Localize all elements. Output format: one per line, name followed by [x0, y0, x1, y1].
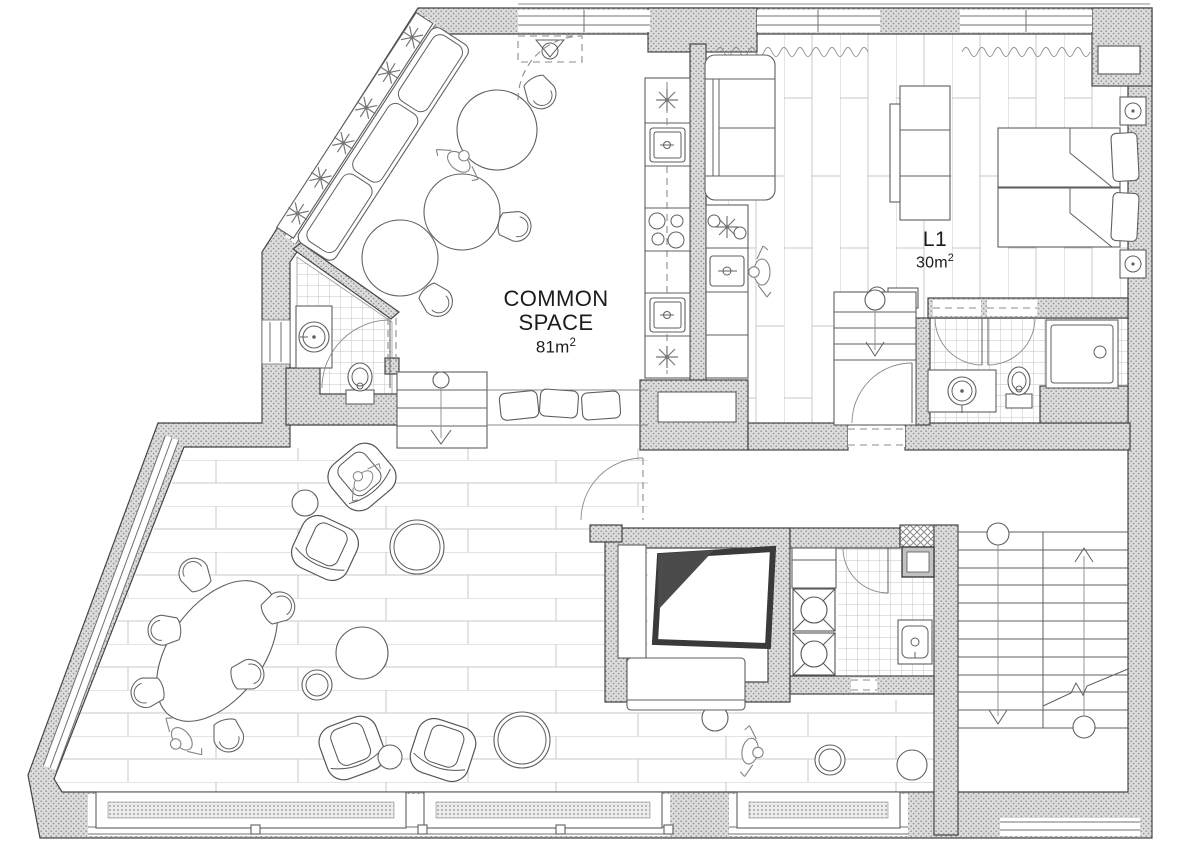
wall-shower [1040, 386, 1128, 423]
entry-stair-l1 [834, 290, 916, 447]
toilet-icon [1006, 367, 1032, 408]
sofa-l1 [705, 55, 775, 200]
window-bench [96, 792, 900, 834]
round-table [362, 220, 438, 296]
washing-machine-icon [793, 589, 835, 631]
floor-cushion [539, 389, 579, 419]
label-common-space: COMMON SPACE 81m2 [491, 287, 621, 358]
pouf [292, 490, 318, 516]
window-wc [262, 320, 290, 364]
wardrobe [890, 86, 950, 220]
wall-laundry-top [790, 528, 900, 548]
pouf [336, 627, 388, 679]
shaft-crosshatch [900, 525, 934, 547]
floor-cushion [499, 390, 540, 421]
twin-bed [998, 128, 1139, 187]
twin-bed [998, 188, 1139, 247]
shower-tray-icon [1046, 320, 1118, 388]
steps-common [397, 372, 487, 448]
coffee-table [494, 712, 550, 768]
room-area-common-space: 81m2 [491, 337, 621, 357]
tub-chair [496, 209, 533, 244]
coffee-table [390, 520, 444, 574]
room-area-unit-l1: 30m2 [899, 252, 971, 272]
pouf [378, 745, 402, 769]
laundry-counter [792, 548, 836, 588]
floor-cushion [581, 391, 621, 421]
burner-star-icon [656, 89, 678, 111]
wall-kitchen-divider [690, 44, 706, 382]
label-unit-l1: L1 30m2 [899, 228, 971, 272]
pillow-icon [1111, 132, 1139, 181]
media-door-panel [618, 545, 646, 658]
round-table [424, 174, 500, 250]
media-bench [627, 658, 745, 710]
burner-star-icon [656, 346, 678, 368]
washing-machine-icon [793, 633, 835, 675]
room-name-unit-l1: L1 [899, 228, 971, 252]
toilet-icon [346, 363, 374, 404]
window-stairwell [1000, 818, 1140, 836]
wall-corridor-top-a [748, 423, 848, 450]
wall-stairwell-left [934, 525, 958, 835]
pillow-icon [1111, 192, 1139, 241]
wall-corridor-top-b [905, 423, 1130, 450]
floor-plan-drawing [0, 0, 1200, 860]
room-name-common-space: COMMON SPACE [491, 287, 621, 335]
floor-plan: COMMON SPACE 81m2 L1 30m2 [0, 0, 1200, 860]
wall-corridor-stub [590, 525, 622, 542]
pouf [897, 750, 927, 780]
